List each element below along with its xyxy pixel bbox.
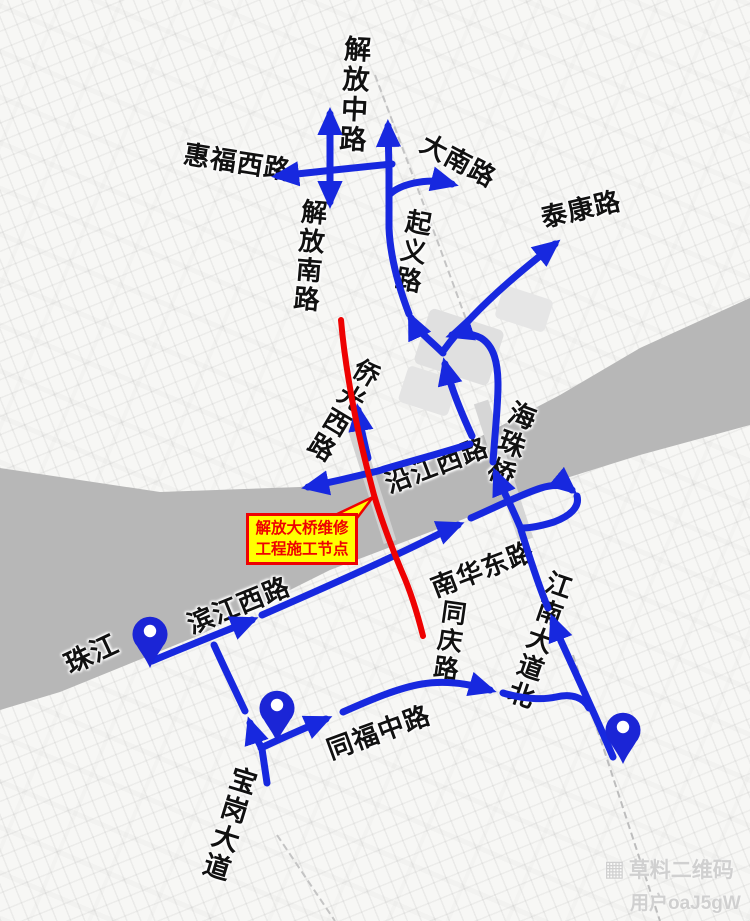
watermark-user-text: 用户oaJ5gW <box>630 888 741 915</box>
annotation-line-1: 解放大桥维修 <box>251 518 353 539</box>
route-danan-east <box>390 181 452 194</box>
route-baogang-tail <box>262 749 267 783</box>
route-baogang-upper <box>214 645 245 711</box>
route-from-yanjiang-up <box>445 364 472 436</box>
route-tongfu-join-jiangnan <box>503 693 589 708</box>
watermark-brand-line: ▦ 草料二维码 <box>604 854 741 884</box>
route-qiyilu-north <box>388 126 409 314</box>
route-binjiangxi-east <box>152 620 252 661</box>
map-canvas: 解放中路 惠福西路 大南路 解放南路 起义路 泰康路 侨光西路 海珠桥 沿江西路… <box>0 0 750 921</box>
route-uturn-loop-out <box>471 486 572 518</box>
route-qiyilu-lower <box>411 318 443 353</box>
detour-routes <box>152 114 613 783</box>
route-uturn-loop-back <box>522 496 578 528</box>
traffic-route-graphics <box>0 0 750 921</box>
route-jiangnan-to-bridge <box>521 530 548 608</box>
route-tongfuzhong-east2 <box>343 682 490 712</box>
route-huifuxi-west <box>278 164 392 176</box>
construction-annotation-box: 解放大桥维修 工程施工节点 <box>246 513 358 565</box>
watermark-brand-text: 草料二维码 <box>629 854 734 884</box>
watermark: ▦ 草料二维码 用户oaJ5gW <box>604 854 741 915</box>
route-yanjiangxi-west <box>308 444 470 487</box>
qr-icon: ▦ <box>604 859 625 879</box>
annotation-line-2: 工程施工节点 <box>251 539 353 560</box>
route-jiangnan-north <box>553 620 613 757</box>
